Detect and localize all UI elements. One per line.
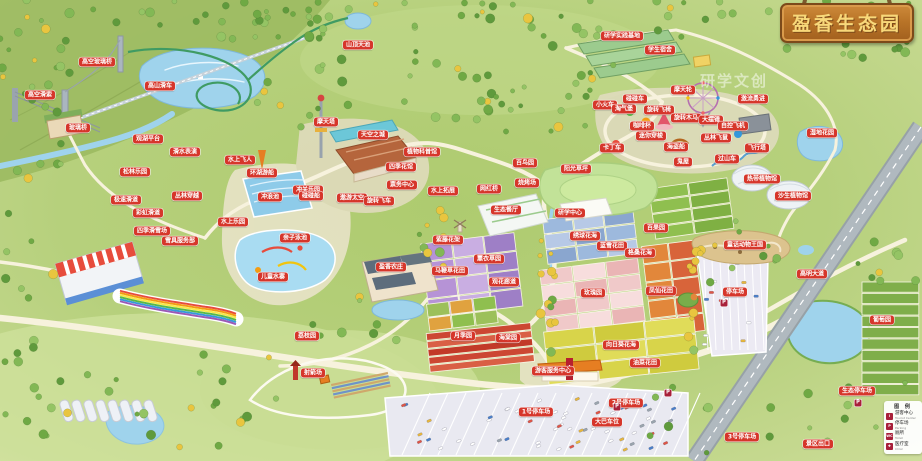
attraction-label: 湿地花园 <box>807 129 837 138</box>
attraction-label: 自控飞机 <box>718 122 748 131</box>
attraction-label: 射箭场 <box>301 369 325 378</box>
attraction-label: 研学中心 <box>555 209 585 218</box>
attraction-label: 景区出口 <box>803 440 833 449</box>
attraction-label: 碰碰船 <box>299 192 323 201</box>
attraction-label: 冲浪池 <box>258 193 282 202</box>
attraction-label: 卡丁车 <box>600 144 624 153</box>
parking-poi-icon: P <box>665 390 672 397</box>
attraction-label: 天空之城 <box>358 131 388 140</box>
attraction-label: 研学实践基地 <box>601 32 643 41</box>
parking-icon: P <box>886 423 893 430</box>
attraction-label: 生态停车场 <box>839 387 875 396</box>
attraction-label: 遨游太空 <box>337 194 367 203</box>
attraction-label: 阳光草坪 <box>561 165 591 174</box>
attraction-label: 3号停车场 <box>725 433 759 442</box>
attraction-label: 过山车 <box>715 155 739 164</box>
attraction-label: 蓝雪花田 <box>597 242 627 251</box>
attraction-label: 百鸟园 <box>513 159 537 168</box>
attraction-label: 绣球花海 <box>570 232 600 241</box>
attraction-label: 飞行塔 <box>745 144 769 153</box>
attraction-label: 沙生植物馆 <box>775 192 811 201</box>
attraction-label: 油菜花田 <box>630 359 660 368</box>
attraction-label: 观湖平台 <box>133 135 163 144</box>
attraction-label: 马鞭草花田 <box>432 267 468 276</box>
attraction-label: 丛林飞鼠 <box>701 134 731 143</box>
attraction-label: 海盗船 <box>664 143 688 152</box>
attraction-label: 植物科普馆 <box>404 148 440 157</box>
parking-poi-icon: P <box>721 300 728 307</box>
legend-title: 图 例 <box>886 403 920 410</box>
attraction-label: 网红桥 <box>477 185 501 194</box>
attraction-label: 极速滑道 <box>111 196 141 205</box>
attraction-label: 激流勇进 <box>738 95 768 104</box>
attraction-label: 月季园 <box>451 332 475 341</box>
parking-poi-icon: P <box>855 400 862 407</box>
attraction-label: 环湖游船 <box>247 169 277 178</box>
attraction-label: 童话动物王国 <box>724 241 766 250</box>
attraction-label: 烧烤场 <box>515 179 539 188</box>
attraction-label: 格桑花海 <box>625 249 655 258</box>
attraction-label: 玻璃桥 <box>66 124 90 133</box>
attraction-label: 紫藤花架 <box>433 236 463 245</box>
attraction-label: 摩天塔 <box>314 118 338 127</box>
attraction-label: 淘气堡 <box>612 105 636 114</box>
attraction-label: 葡萄园 <box>870 316 894 325</box>
attraction-label: 彩虹滑道 <box>133 209 163 218</box>
attraction-label: 水上拓展 <box>428 187 458 196</box>
attraction-label: 停车场 <box>723 288 747 297</box>
attraction-label: 水上飞人 <box>225 156 255 165</box>
medical-icon: ✚ <box>886 443 893 450</box>
attraction-label: 海棠园 <box>496 334 520 343</box>
attraction-label: 旋转木马 <box>671 114 701 123</box>
attraction-label: 高明大道 <box>797 270 827 279</box>
attraction-label: 松林乐园 <box>120 168 150 177</box>
park-map: i 山顶天池高空玻璃桥高山滑车高空滑索玻璃桥观湖平台滑水表演水上飞人环湖游船丛林… <box>0 0 922 461</box>
legend-row-visitor-center: i 游客中心Tourist Center <box>886 412 920 420</box>
attraction-label: 旋转飞车 <box>364 197 394 206</box>
parking-poi-icon: P <box>614 404 621 411</box>
attraction-label: 高山滑车 <box>145 82 175 91</box>
attraction-label: 凤仙花田 <box>646 287 676 296</box>
attraction-label: 票务中心 <box>387 181 417 190</box>
park-title-sign: 盈香生态园 <box>780 3 914 43</box>
watermark-text: 研学文创 <box>700 70 768 91</box>
attraction-label: 四季花馆 <box>386 163 416 172</box>
attraction-label: 儿童水寨 <box>258 273 288 282</box>
attraction-label: 迷你穿梭 <box>636 132 666 141</box>
attraction-label: 碰碰车 <box>623 95 647 104</box>
legend-row-parking: P 停车场Parking <box>886 422 920 430</box>
map-legend: 图 例 i 游客中心Tourist Center P 停车场Parking WC… <box>884 401 922 454</box>
attraction-label: 咖啡杯 <box>630 122 654 131</box>
park-title: 盈香生态园 <box>792 13 902 35</box>
legend-row-clinic: ✚ 医疗室Clinic <box>886 443 920 451</box>
attraction-label: 薰衣草园 <box>474 255 504 264</box>
attraction-label: 生态餐厅 <box>491 206 521 215</box>
legend-row-toilet: WC 厕所Toilet <box>886 432 920 440</box>
attraction-label: 玫瑰园 <box>581 289 605 298</box>
attraction-label: 百果园 <box>644 224 668 233</box>
attraction-label: 荔枝园 <box>295 332 319 341</box>
attraction-label: 山顶天池 <box>343 41 373 50</box>
attraction-label: 学生宿舍 <box>645 46 675 55</box>
attraction-label: 摩天轮 <box>671 86 695 95</box>
attraction-label: 高空玻璃桥 <box>79 58 115 67</box>
attraction-label: 旋转飞椅 <box>644 106 674 115</box>
toilet-icon: WC <box>886 433 893 440</box>
attraction-label: 盈香农庄 <box>376 263 406 272</box>
attraction-label: 高空滑索 <box>25 91 55 100</box>
attraction-label: 水上乐园 <box>218 218 248 227</box>
attraction-label: 鬼屋 <box>674 158 692 167</box>
attraction-label: 滑水表演 <box>170 148 200 157</box>
attraction-label: 游客服务中心 <box>532 367 574 376</box>
attraction-label: 1号停车场 <box>519 408 553 417</box>
park-title-plaque: 盈香生态园 <box>780 3 914 43</box>
attraction-label: 雪具服务部 <box>162 237 198 246</box>
attraction-label: 热带植物馆 <box>744 175 780 184</box>
attraction-label: 亲子泳池 <box>280 234 310 243</box>
attraction-label: 观花廊道 <box>489 278 519 287</box>
attraction-label: 四季滑雪场 <box>134 227 170 236</box>
attraction-label: 向日葵花海 <box>603 341 639 350</box>
attraction-label: 丛林穿越 <box>172 192 202 201</box>
info-icon: i <box>886 413 893 420</box>
attraction-label: 大巴车位 <box>592 418 622 427</box>
